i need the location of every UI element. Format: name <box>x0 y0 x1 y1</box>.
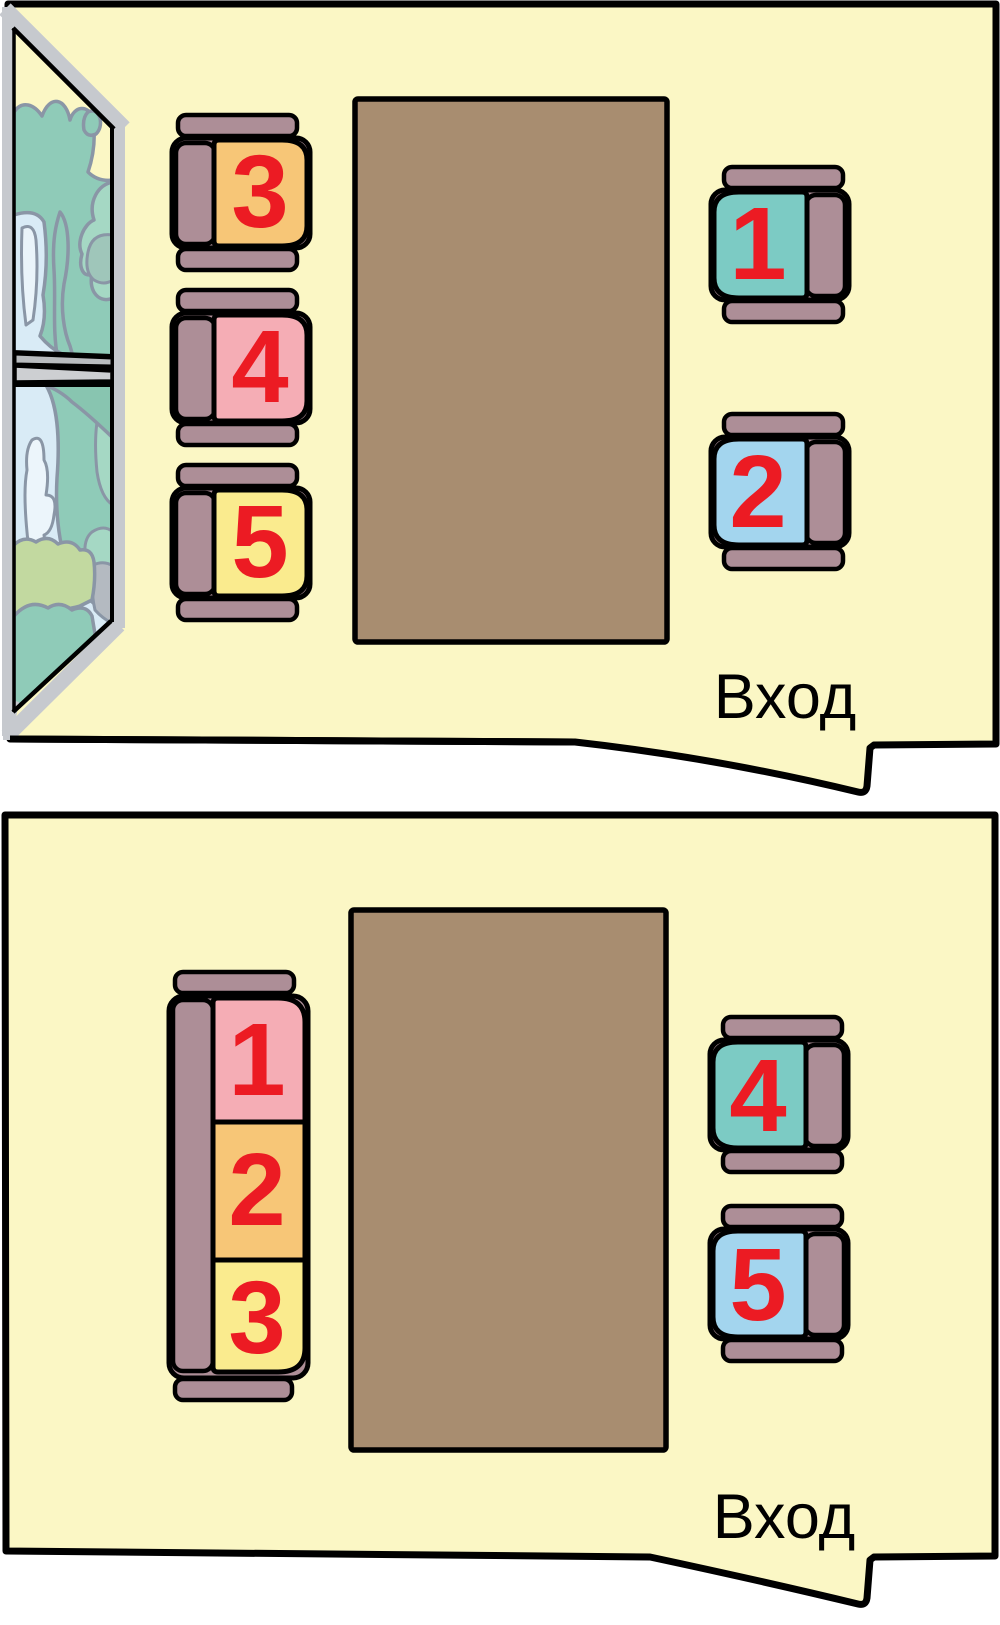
svg-text:3: 3 <box>231 134 288 249</box>
svg-text:2: 2 <box>228 1132 285 1247</box>
svg-text:5: 5 <box>231 484 288 599</box>
svg-text:5: 5 <box>729 1227 786 1342</box>
svg-text:4: 4 <box>729 1038 786 1153</box>
svg-text:1: 1 <box>228 1002 285 1117</box>
svg-text:4: 4 <box>231 309 288 424</box>
svg-text:2: 2 <box>729 434 786 549</box>
svg-text:3: 3 <box>228 1260 285 1375</box>
svg-text:Вход: Вход <box>714 662 857 732</box>
svg-text:Вход: Вход <box>713 1482 856 1552</box>
svg-text:1: 1 <box>729 186 786 301</box>
